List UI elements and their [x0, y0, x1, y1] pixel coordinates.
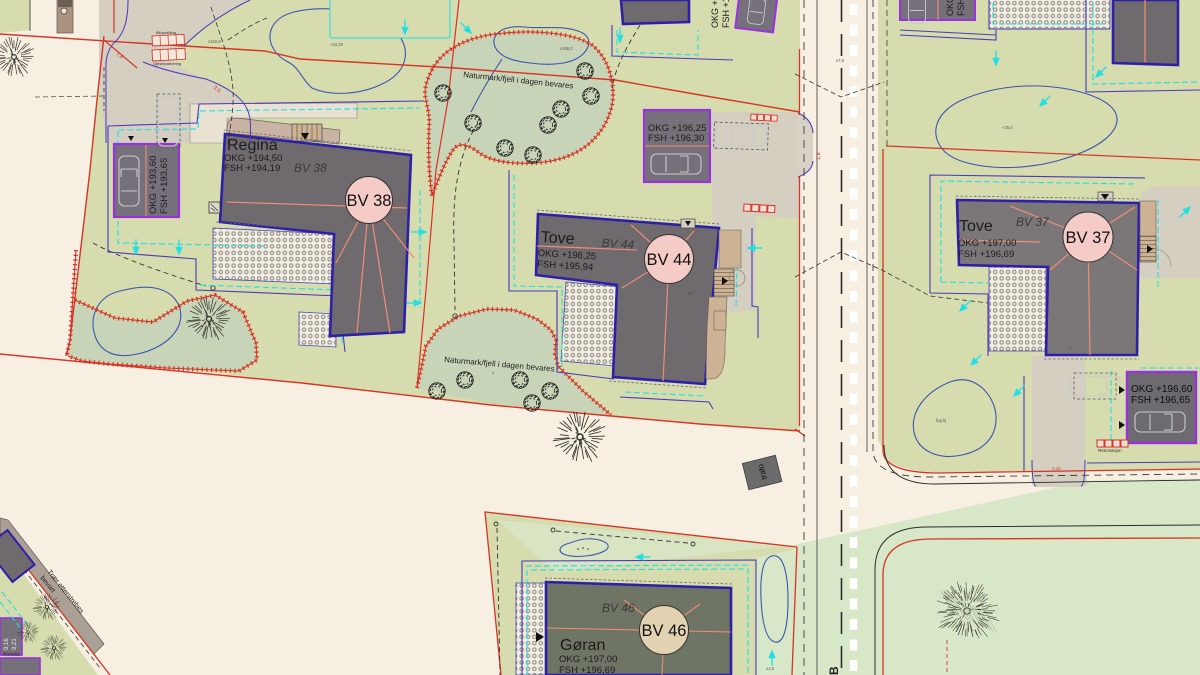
- svg-text:FSH +196,69: FSH +196,69: [559, 665, 615, 675]
- svg-text:FSH +19: FSH +19: [721, 0, 731, 28]
- svg-text:BV 44: BV 44: [601, 236, 635, 252]
- svg-text:1,8: 1,8: [816, 152, 822, 160]
- svg-text:BV 38: BV 38: [294, 161, 327, 175]
- svg-text:OKG +197,00: OKG +197,00: [559, 654, 617, 665]
- svg-text:x7,5: x7,5: [836, 58, 845, 63]
- svg-text:OKG +196,60: OKG +196,60: [1131, 384, 1193, 395]
- svg-text:OKG +197,00: OKG +197,00: [958, 238, 1016, 249]
- svg-text:Anneks: Anneks: [3, 652, 20, 658]
- svg-text:FSH +196,65: FSH +196,65: [1131, 395, 1191, 406]
- svg-text:BV 46: BV 46: [642, 622, 687, 640]
- svg-text:FSH +193,65: FSH +193,65: [159, 158, 170, 214]
- svg-text:BV 37: BV 37: [1066, 229, 1111, 247]
- svg-text:OKG +19: OKG +19: [710, 0, 720, 28]
- svg-text:OKG: OKG: [945, 0, 955, 16]
- svg-text:+24,30: +24,30: [330, 42, 344, 47]
- svg-text:BV 46: BV 46: [602, 601, 635, 615]
- svg-text:B: B: [827, 666, 841, 675]
- svg-text:Gjesteparkering: Gjesteparkering: [153, 61, 181, 66]
- svg-text:x192,9: x192,9: [208, 39, 221, 44]
- svg-text:9,21: 9,21: [12, 638, 18, 650]
- svg-text:BV 37: BV 37: [1016, 215, 1050, 229]
- svg-text:BV 38: BV 38: [347, 192, 392, 210]
- svg-text:BV 44: BV 44: [647, 251, 692, 269]
- svg-text:Tove: Tove: [959, 218, 993, 235]
- svg-text:07: 07: [1068, 346, 1073, 351]
- svg-text:FSH +194,19: FSH +194,19: [224, 163, 280, 174]
- svg-text:9,16: 9,16: [4, 638, 10, 650]
- svg-text:FSH +196,69: FSH +196,69: [958, 249, 1014, 260]
- svg-text:2,15: 2,15: [1052, 466, 1061, 471]
- svg-text:+25,0: +25,0: [1002, 125, 1013, 130]
- svg-text:x1,5: x1,5: [766, 666, 775, 671]
- svg-text:FSH: FSH: [956, 0, 966, 16]
- svg-text:x196,0: x196,0: [560, 46, 573, 51]
- svg-text:OKG +193,60: OKG +193,60: [148, 156, 159, 214]
- svg-text:86: 86: [688, 291, 693, 296]
- svg-text:Gøran: Gøran: [560, 637, 605, 654]
- svg-text:fug.hj: fug.hj: [936, 418, 946, 423]
- svg-text:Renovasjon: Renovasjon: [1098, 448, 1122, 453]
- svg-text:Bilopstilling: Bilopstilling: [156, 30, 176, 35]
- svg-text:Regina: Regina: [227, 137, 278, 154]
- svg-text:FSH +196,30: FSH +196,30: [648, 133, 704, 144]
- svg-text:Tove: Tove: [540, 229, 575, 248]
